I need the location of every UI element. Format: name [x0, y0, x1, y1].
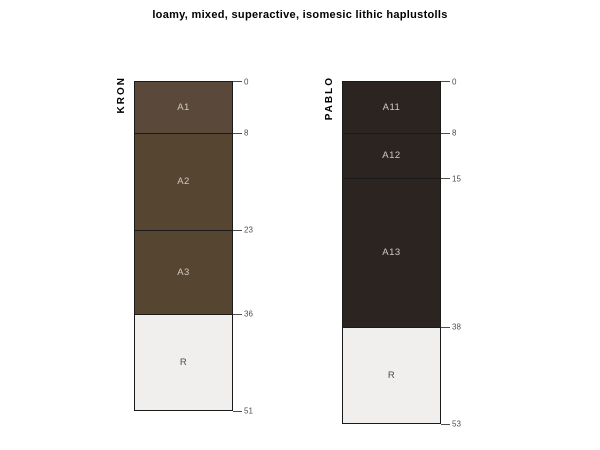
depth-tick-label: 51	[244, 407, 253, 416]
depth-tick-label: 15	[452, 174, 461, 183]
depth-tick-label: 8	[452, 129, 456, 138]
horizon-name-label: A1	[177, 102, 190, 113]
plot-title: loamy, mixed, superactive, isomesic lith…	[0, 9, 600, 21]
depth-tick-label: 38	[452, 323, 461, 332]
depth-tick	[441, 424, 450, 425]
depth-tick	[233, 133, 242, 134]
profile-id-label-kron: KRON	[116, 76, 128, 113]
horizon-rect-kron-a2: A2	[134, 133, 233, 230]
depth-tick	[233, 314, 242, 315]
horizon-rect-kron-r: R	[134, 314, 233, 411]
horizon-name-label: A3	[177, 267, 190, 278]
depth-tick-label: 36	[244, 310, 253, 319]
depth-tick-label: 0	[244, 77, 248, 86]
horizon-rect-pablo-a12: A12	[342, 133, 441, 178]
horizon-name-label: A12	[382, 150, 400, 161]
horizon-rect-kron-a1: A1	[134, 81, 233, 133]
depth-tick	[233, 81, 242, 82]
depth-tick	[233, 411, 242, 412]
depth-tick	[233, 230, 242, 231]
soil-profile-plot: loamy, mixed, superactive, isomesic lith…	[0, 0, 600, 450]
depth-tick-label: 8	[244, 129, 248, 138]
horizon-rect-pablo-r: R	[342, 327, 441, 424]
depth-tick-label: 23	[244, 226, 253, 235]
horizon-name-label: A2	[177, 176, 190, 187]
horizon-name-label: A11	[383, 102, 401, 113]
depth-tick	[441, 133, 450, 134]
depth-tick	[441, 327, 450, 328]
depth-tick	[441, 178, 450, 179]
horizon-name-label: R	[388, 370, 395, 381]
profile-id-label-pablo: PABLO	[324, 76, 336, 120]
horizon-name-label: A13	[382, 247, 400, 258]
horizon-rect-kron-a3: A3	[134, 230, 233, 314]
depth-tick-label: 0	[452, 77, 456, 86]
depth-tick	[441, 81, 450, 82]
depth-tick-label: 53	[452, 420, 461, 429]
horizon-rect-pablo-a11: A11	[342, 81, 441, 133]
horizon-name-label: R	[180, 357, 187, 368]
horizon-rect-pablo-a13: A13	[342, 178, 441, 327]
